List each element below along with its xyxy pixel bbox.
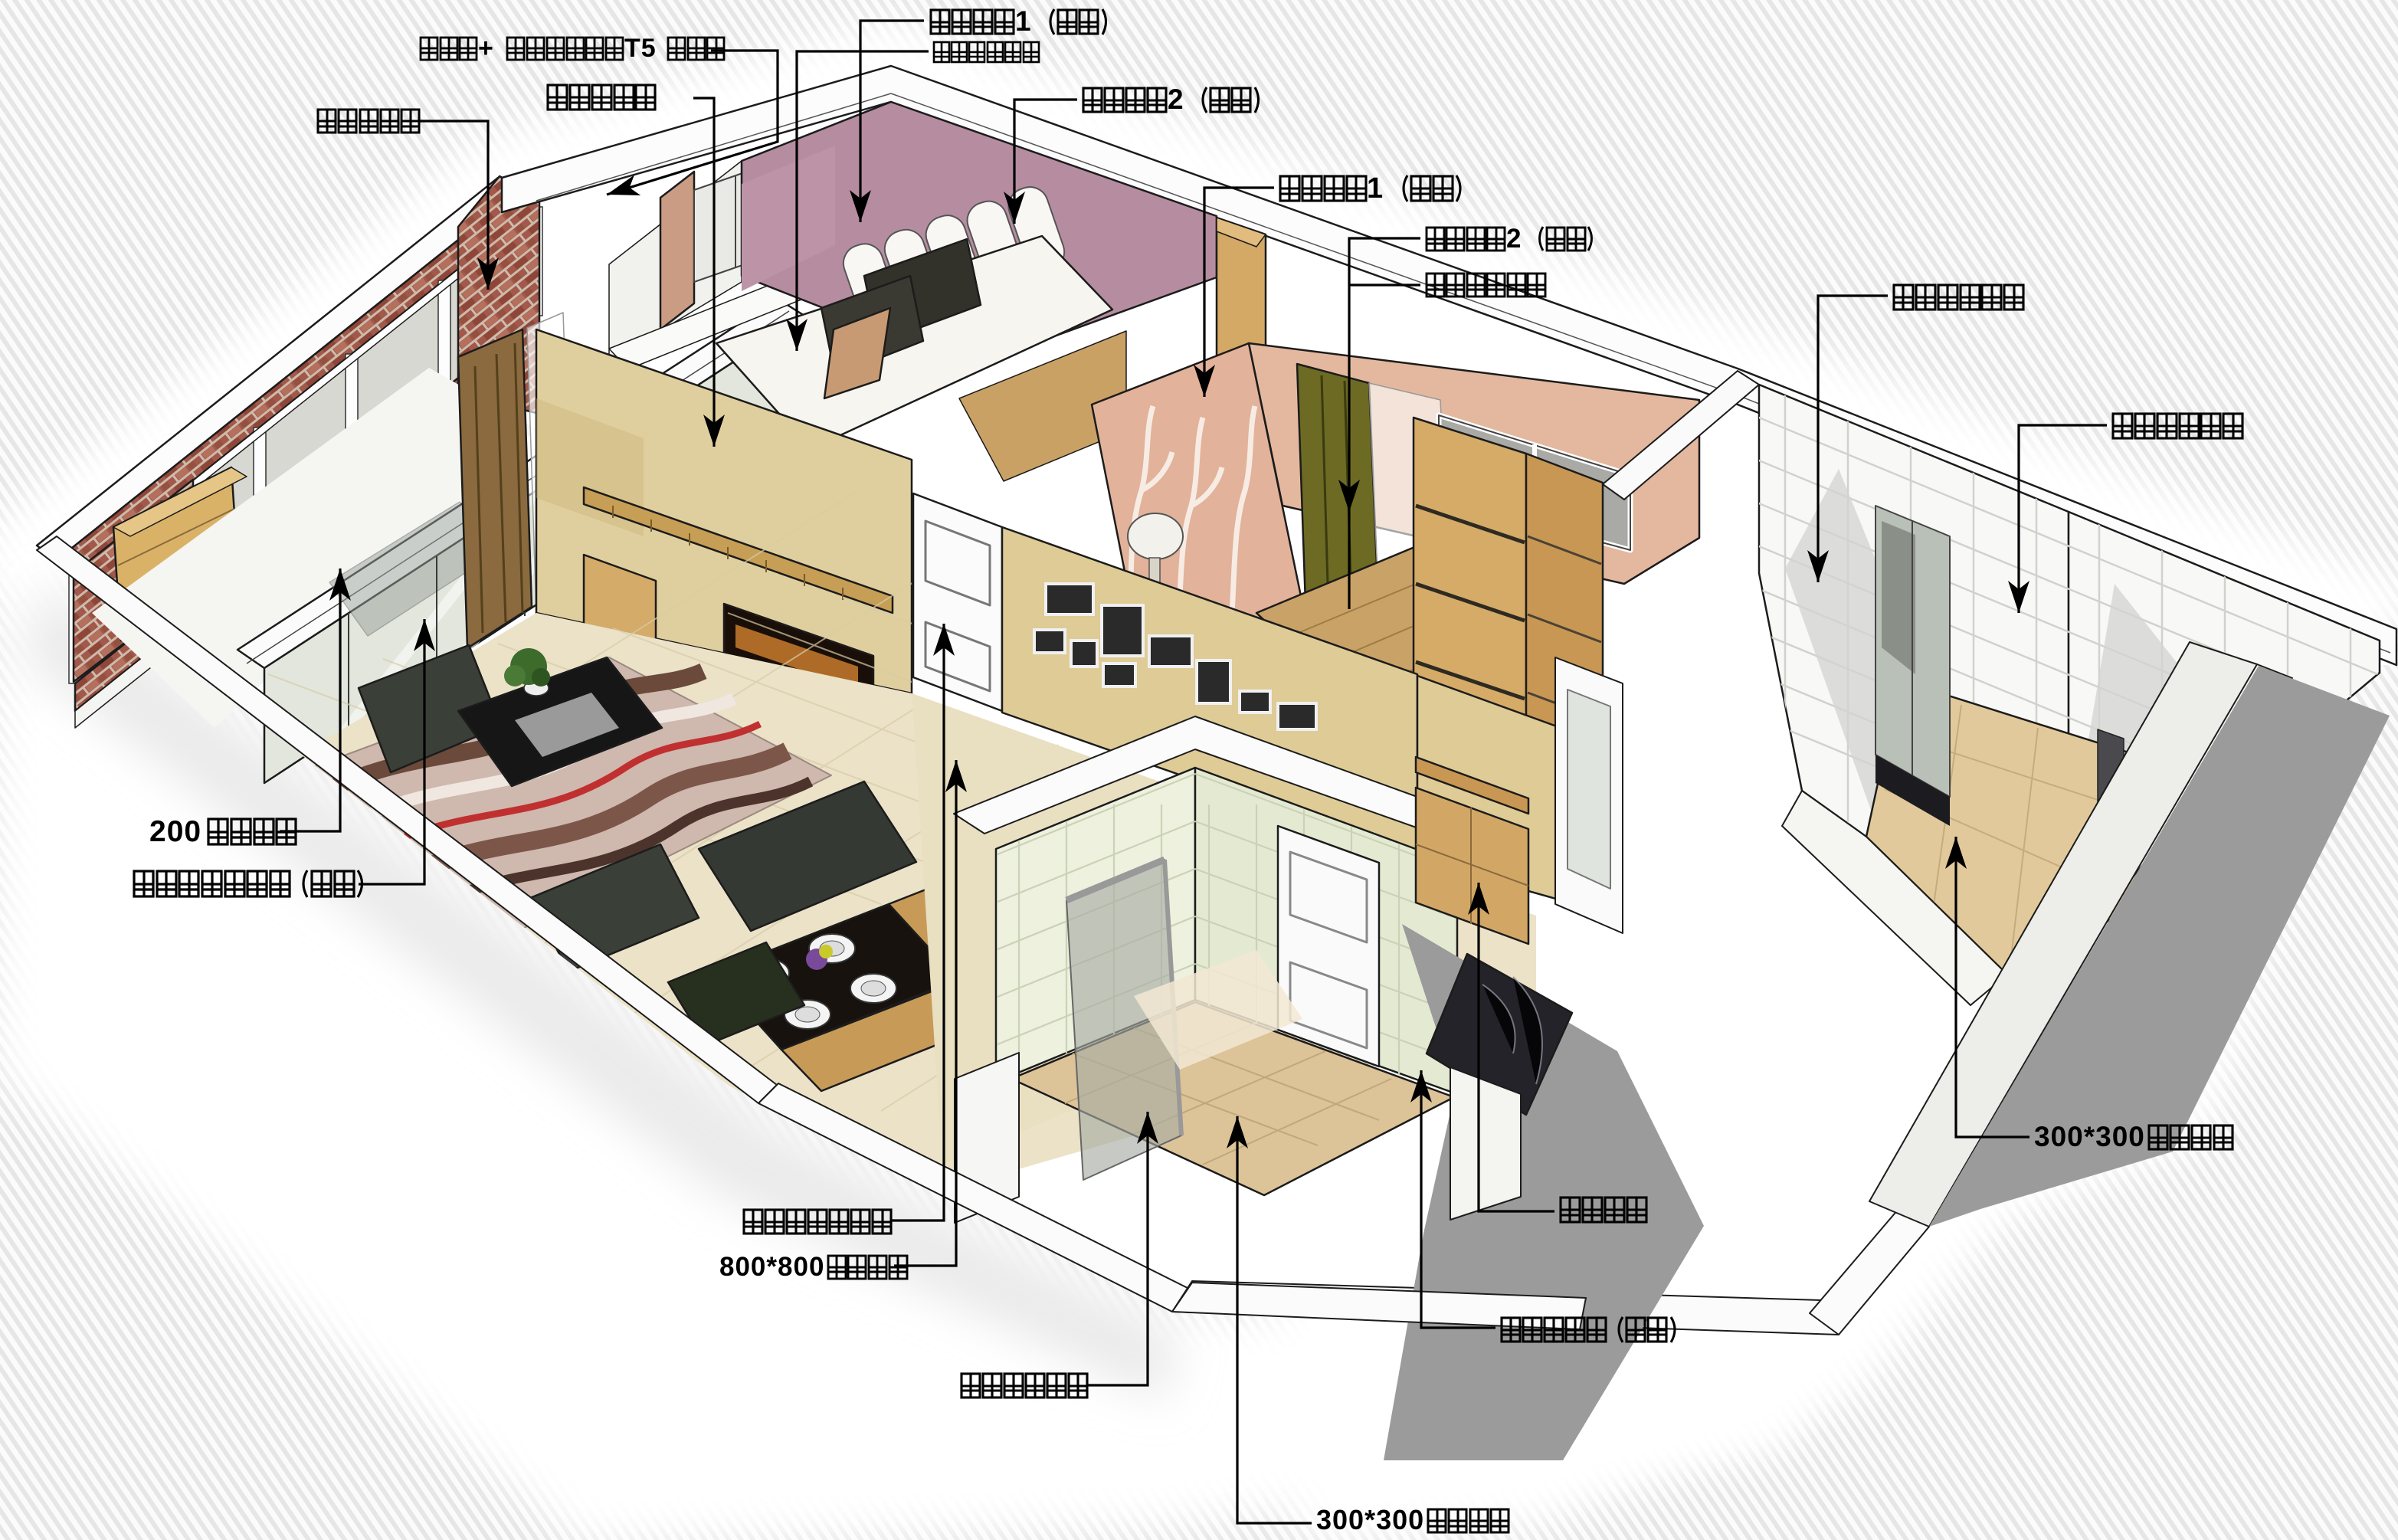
svg-text:300*300: 300*300 xyxy=(2034,1121,2145,1152)
svg-text:2: 2 xyxy=(1168,84,1184,115)
svg-text:T5: T5 xyxy=(624,34,657,63)
svg-text:1: 1 xyxy=(1015,5,1032,37)
svg-text:300*300: 300*300 xyxy=(1316,1504,1424,1535)
svg-text:2: 2 xyxy=(1506,224,1522,254)
svg-text:200: 200 xyxy=(149,815,201,848)
svg-text:800*800: 800*800 xyxy=(719,1252,824,1282)
svg-text:+: + xyxy=(478,34,494,63)
svg-text:1: 1 xyxy=(1367,172,1384,205)
